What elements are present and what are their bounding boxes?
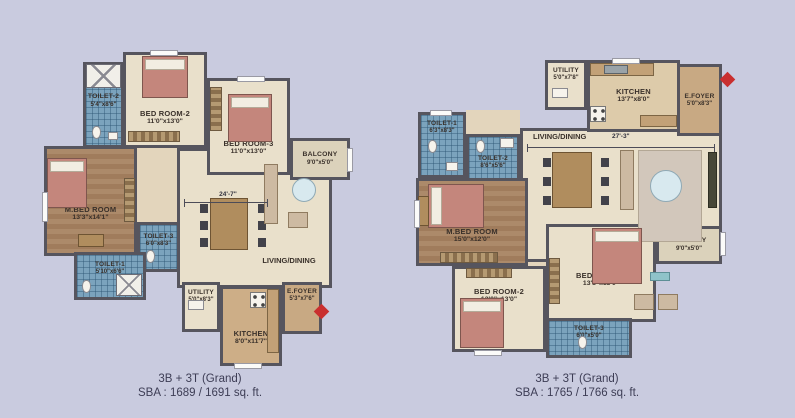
caption-left-line1: 3B + 3T (Grand) xyxy=(80,372,320,386)
toilet-fixture xyxy=(82,280,91,293)
room-label: TOILET-1 6'3"x8'3" xyxy=(421,115,463,135)
efoyer-right-dims: 5'0"x8'3" xyxy=(687,101,712,108)
dining-table xyxy=(552,152,592,208)
room-label: TOILET-3 6'0"x5'0" xyxy=(549,321,629,340)
floorplan-canvas: LIVING/DINING 24'-7" BED ROOM-2 11'0"x13… xyxy=(0,0,795,418)
bed xyxy=(460,298,504,348)
window xyxy=(347,148,353,172)
mbedroom-left-dims: 13'3"x14'1" xyxy=(72,214,108,222)
round-table xyxy=(292,178,316,202)
room-label: UTILITY 5'0"x7'8" xyxy=(548,63,584,82)
bed xyxy=(228,94,272,142)
pillow xyxy=(231,97,269,108)
bed xyxy=(428,184,484,228)
sofa xyxy=(620,150,634,210)
washbasin xyxy=(446,162,458,171)
bedroom2-left-dims: 11'0"x13'0" xyxy=(147,118,183,126)
caption-right-line2: SBA : 1765 / 1766 sq. ft. xyxy=(457,386,697,400)
utility-right-name: UTILITY xyxy=(553,67,579,75)
bed xyxy=(592,228,642,284)
pillow xyxy=(595,231,639,242)
stove xyxy=(590,106,606,122)
efoyer-left-dims: 5'3"x7'6" xyxy=(289,296,314,303)
living-right-label: LIVING/DINING xyxy=(533,132,586,141)
dining-table xyxy=(210,198,248,250)
bedroom2-right-name: BED ROOM-2 xyxy=(474,287,524,296)
bed xyxy=(142,56,188,98)
armchair xyxy=(288,212,308,228)
kitchen-counter xyxy=(640,115,677,127)
wardrobe xyxy=(124,178,135,222)
kitchen-right-dims: 13'7"x8'0" xyxy=(617,96,649,104)
kitchen-counter xyxy=(267,289,279,353)
toilet2-left-dims: 5'4"x8'6" xyxy=(90,101,116,108)
living-left-dim: 24'-7" xyxy=(204,191,252,198)
pillow xyxy=(50,161,84,172)
utility-sink xyxy=(552,88,568,98)
living-left-label: LIVING/DINING xyxy=(243,256,335,265)
toilet1-right-dims: 6'3"x8'3" xyxy=(429,128,454,135)
bedroom3-left-dims: 11'0"x13'0" xyxy=(231,148,267,156)
wardrobe xyxy=(466,268,512,278)
kitchen-sink xyxy=(604,65,628,74)
window xyxy=(612,58,640,64)
dimension-line xyxy=(527,147,715,148)
tv-unit xyxy=(708,152,717,208)
armchair xyxy=(634,294,654,310)
window xyxy=(150,50,178,56)
dimension-line xyxy=(184,202,268,203)
room-label: TOILET-3 6'0"x8'3" xyxy=(140,225,177,248)
window xyxy=(720,232,726,256)
toilet2-right-name: TOILET-2 xyxy=(478,155,508,163)
desk xyxy=(78,234,104,247)
room-efoyer-right: E.FOYER 5'0"x8'3" xyxy=(677,64,722,136)
balcony-left-dims: 9'0"x5'0" xyxy=(307,159,333,166)
armchair xyxy=(658,294,678,310)
room-toilet1-right: TOILET-1 6'3"x8'3" xyxy=(418,112,466,178)
stove xyxy=(250,292,266,308)
utility-sink xyxy=(188,300,204,310)
utility-right-dims: 5'0"x7'8" xyxy=(553,75,578,82)
toilet3-left-name: TOILET-3 xyxy=(143,233,173,241)
bedroom2-left-name: BED ROOM-2 xyxy=(140,109,190,118)
sofa xyxy=(264,164,278,224)
toilet-fixture xyxy=(92,126,101,139)
living-right-dim: 27'-3" xyxy=(612,133,630,140)
toilet1-right-name: TOILET-1 xyxy=(427,120,457,128)
room-label: E.FOYER 5'3"x7'6" xyxy=(285,285,319,303)
toilet-fixture xyxy=(146,250,155,263)
toilet-fixture xyxy=(578,336,587,349)
washbasin xyxy=(108,132,118,140)
kitchen-left-name: KITCHEN xyxy=(234,329,269,338)
utility-left-name: UTILITY xyxy=(188,289,214,297)
room-utility-right: UTILITY 5'0"x7'8" xyxy=(545,60,587,110)
washbasin xyxy=(500,138,514,148)
corridor xyxy=(466,110,520,136)
wardrobe xyxy=(440,252,498,263)
window xyxy=(234,363,262,369)
toilet3-right-name: TOILET-3 xyxy=(574,325,604,333)
room-label: E.FOYER 5'0"x8'3" xyxy=(680,67,719,108)
kitchen-right-name: KITCHEN xyxy=(616,87,651,96)
balcony-left-name: BALCONY xyxy=(302,151,337,159)
dining-chairs xyxy=(543,158,551,167)
shower-stall xyxy=(86,64,121,88)
pillow xyxy=(145,59,185,70)
toilet2-right-dims: 8'6"x5'6" xyxy=(480,163,505,170)
wardrobe xyxy=(128,131,180,142)
room-label: BALCONY 9'0"x5'0" xyxy=(293,141,347,167)
side-table xyxy=(650,272,670,281)
kitchen-left-dims: 8'0"x11'7" xyxy=(235,338,267,346)
mbedroom-right-dims: 15'0"x12'0" xyxy=(454,236,490,244)
toilet-fixture xyxy=(428,140,437,153)
mbedroom-right-name: M.BED ROOM xyxy=(446,227,498,236)
entry-marker-icon xyxy=(720,72,736,88)
window xyxy=(414,200,420,228)
toilet-fixture xyxy=(476,140,485,153)
wardrobe xyxy=(210,87,222,131)
room-balcony-left: BALCONY 9'0"x5'0" xyxy=(290,138,350,180)
caption-left: 3B + 3T (Grand) SBA : 1689 / 1691 sq. ft… xyxy=(80,372,320,400)
dining-chairs xyxy=(200,204,208,213)
balcony-right-dims: 9'0"x5'0" xyxy=(676,245,702,252)
round-table xyxy=(650,170,682,202)
efoyer-left-name: E.FOYER xyxy=(287,288,317,296)
room-label: TOILET-1 5'10"x6'6" xyxy=(77,255,143,276)
window xyxy=(42,192,48,222)
efoyer-right-name: E.FOYER xyxy=(685,93,715,101)
caption-right: 3B + 3T (Grand) SBA : 1765 / 1766 sq. ft… xyxy=(457,372,697,400)
caption-left-line2: SBA : 1689 / 1691 sq. ft. xyxy=(80,386,320,400)
window xyxy=(237,76,265,82)
pillow xyxy=(431,187,442,225)
bed xyxy=(47,158,87,208)
room-toilet3-right: TOILET-3 6'0"x5'0" xyxy=(546,318,632,358)
toilet2-left-name: TOILET-2 xyxy=(88,93,119,101)
pillow xyxy=(463,301,501,312)
caption-right-line1: 3B + 3T (Grand) xyxy=(457,372,697,386)
wardrobe xyxy=(549,258,560,304)
toilet1-left-name: TOILET-1 xyxy=(95,261,125,269)
window xyxy=(474,350,502,356)
window xyxy=(430,110,452,116)
toilet3-left-dims: 6'0"x8'3" xyxy=(146,241,171,248)
shower-stall xyxy=(116,274,142,296)
